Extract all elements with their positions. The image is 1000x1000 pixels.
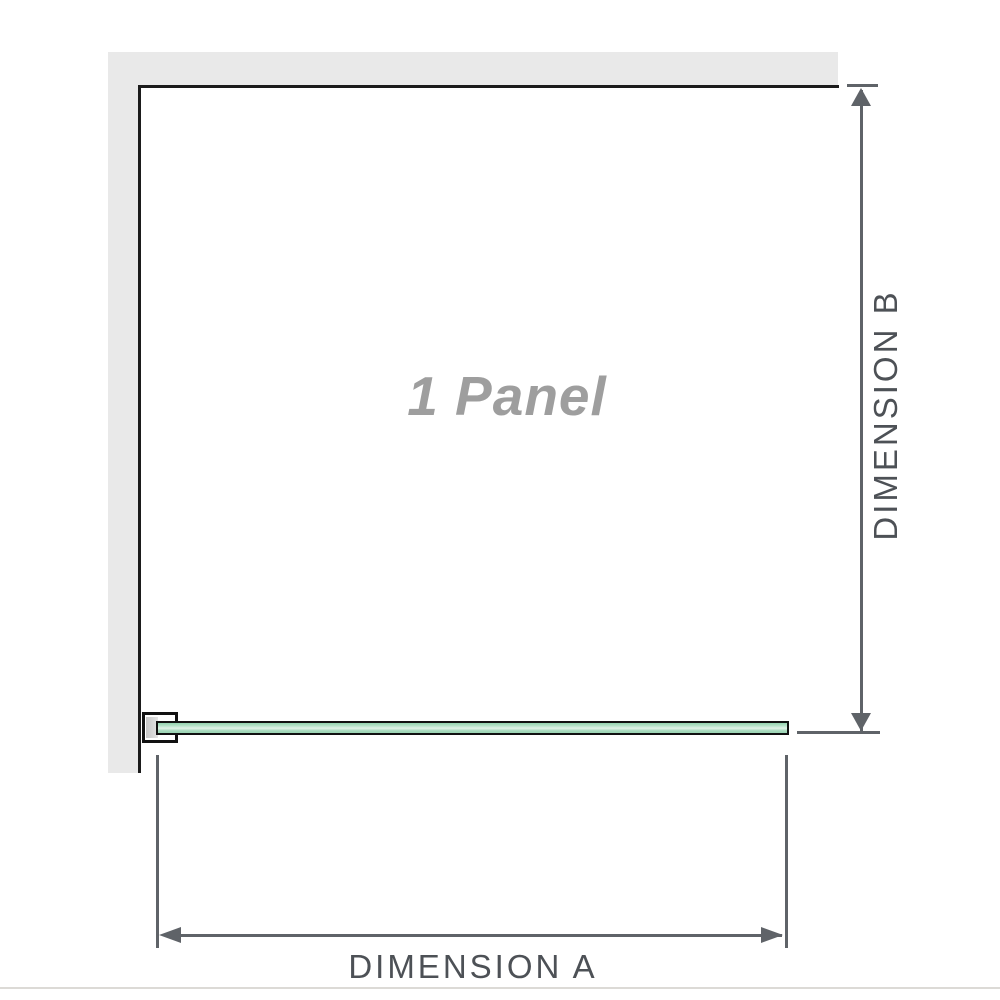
dimension-a-label: DIMENSION A [273,948,673,986]
dimension-a-extension-right [785,755,788,948]
enclosure-left-edge [138,85,141,773]
enclosure-top-edge [138,85,839,88]
dimension-a-arrowhead-left-icon [159,927,181,943]
dimension-b-arrowhead-down-icon [851,713,871,731]
dimension-a-arrowhead-right-icon [761,927,783,943]
dimension-a-arrow-line [166,934,782,937]
panel-count-label: 1 Panel [207,366,807,426]
dimension-b-arrow-line [860,90,863,731]
dimension-b-tick-bottom [797,731,880,734]
dimension-b-label: DIMENSION B [867,289,905,540]
wall-top-band [108,52,838,85]
dimension-a-extension-left [156,755,159,948]
dimension-b-tick-top [847,84,878,87]
wall-left-band [108,52,140,773]
glass-panel-top-view [156,721,789,735]
image-bottom-divider [0,987,1000,989]
panel-dimension-diagram: 1 Panel DIMENSION B DIMENSION A [0,0,1000,1000]
dimension-b-arrowhead-up-icon [851,88,871,106]
